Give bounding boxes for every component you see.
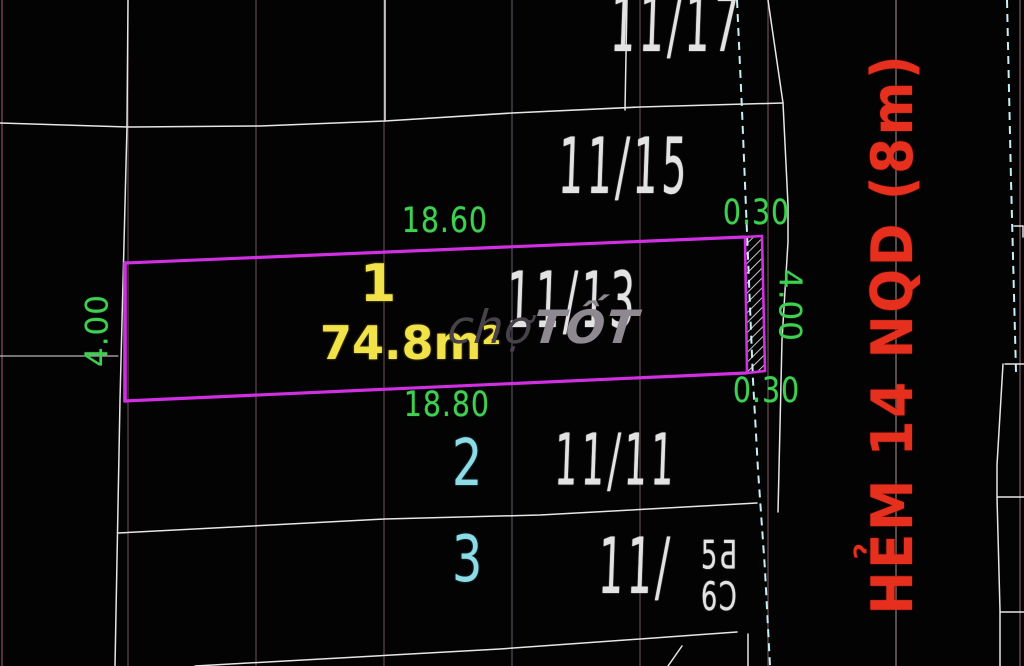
setback-bottom: 0.30 bbox=[733, 374, 800, 409]
house-number-11-15: 11/15 bbox=[557, 128, 692, 206]
plot-number: 1 bbox=[360, 258, 396, 310]
dimension-bottom: 18.80 bbox=[404, 388, 490, 423]
chotot-watermark: chợTỐT bbox=[446, 304, 641, 350]
watermark-part2: TỐT bbox=[531, 300, 642, 354]
lot-number-2: 2 bbox=[452, 432, 482, 496]
dimension-right: 4.00 bbox=[774, 261, 805, 351]
setback-top: 0.30 bbox=[723, 196, 790, 231]
dimension-top: 18.60 bbox=[402, 204, 488, 239]
dimension-left: 4.00 bbox=[83, 286, 114, 376]
cadastral-drawing: 11/17 11/15 11/13 11/11 11/ 5Ƌ 6Ɔ 1 74.8… bbox=[0, 0, 1024, 666]
watermark-part1: chợ bbox=[445, 300, 536, 354]
bottom-house-prefix: 11/ bbox=[597, 528, 674, 606]
bottom-house-lower: 6Ɔ bbox=[701, 577, 739, 618]
house-number-11-11: 11/11 bbox=[553, 424, 678, 495]
bottom-house-upper: 5Ƌ bbox=[701, 536, 739, 577]
hatched-edge bbox=[745, 236, 765, 373]
street-name: HẺM 14 NQD (8m) bbox=[865, 64, 922, 615]
house-number-11-17: 11/17 bbox=[609, 0, 744, 64]
lot-number-3: 3 bbox=[452, 528, 482, 592]
house-number-bottom: 11/ 5Ƌ 6Ɔ bbox=[600, 528, 746, 599]
